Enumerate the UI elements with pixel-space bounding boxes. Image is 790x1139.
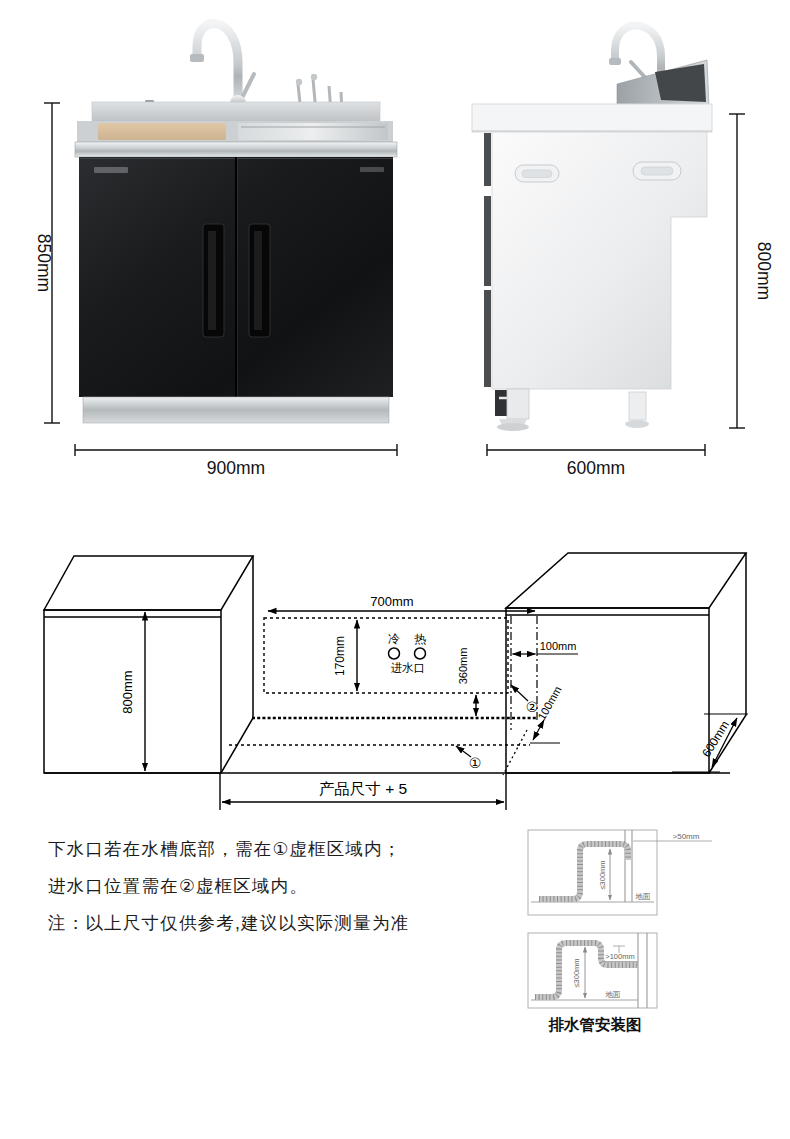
height-label: ≤300mm bbox=[572, 958, 581, 987]
left-door-handle-inner bbox=[208, 231, 216, 330]
left-box-top-face bbox=[44, 556, 253, 610]
ground-label: 地面 bbox=[635, 892, 652, 901]
cold-inlet-circle bbox=[389, 648, 400, 659]
opening-width-label: 700mm bbox=[370, 594, 413, 609]
drain-diagram-wall: >100mm ≤300mm 地面 bbox=[528, 933, 657, 1008]
front-foot bbox=[507, 389, 529, 419]
left-box-right-face bbox=[221, 556, 253, 773]
drain-pipe-guide: ≤300mm 地面 >50mm >100mm ≤300mm 地面 bbox=[525, 828, 720, 1043]
rear-foot bbox=[629, 392, 646, 420]
inlet-label: 进水口 bbox=[391, 662, 426, 674]
counter-apron bbox=[75, 142, 397, 157]
installation-notes: 下水口若在水槽底部，需在①虚框区域内； 进水口位置需在②虚框区域内。 注：以上尺… bbox=[48, 831, 518, 942]
backsplash bbox=[92, 102, 380, 121]
cutting-board bbox=[98, 123, 226, 140]
inlet-height-label: 170mm bbox=[333, 636, 347, 676]
side-view-figure: 800mm 600mm bbox=[455, 0, 775, 480]
countertop bbox=[77, 121, 393, 142]
front-width-label: 900mm bbox=[207, 458, 265, 478]
drain-offset-label: 360mm bbox=[457, 648, 469, 685]
note-line-3: 注：以上尺寸仅供参考,建议以实际测量为准 bbox=[48, 905, 518, 942]
note-line-1: 下水口若在水槽底部，需在①虚框区域内； bbox=[48, 831, 518, 868]
product-dimension-sheet: 850mm 900mm bbox=[0, 0, 790, 1139]
zone2-depth-arrow bbox=[533, 720, 544, 740]
rear-foot-pad bbox=[625, 420, 649, 428]
utensil-handle bbox=[311, 74, 317, 80]
front-view-figure: 850mm 900mm bbox=[0, 0, 450, 480]
hot-inlet-circle bbox=[415, 648, 426, 659]
corrugated-pipe bbox=[539, 844, 628, 899]
faucet-lever bbox=[243, 74, 254, 96]
zone2-depth-label: 100mm bbox=[535, 684, 563, 722]
installation-diagram: 800mm 700mm 170mm 冷 热 进水口 360mm 100mm ② … bbox=[30, 530, 790, 830]
sink-basin bbox=[238, 123, 388, 140]
height-dim-label: 800mm bbox=[120, 670, 135, 713]
side-door-edge-strips bbox=[484, 133, 491, 387]
clearance-label: >50mm bbox=[673, 832, 700, 841]
front-width-dimension bbox=[75, 444, 397, 456]
note-line-2: 进水口位置需在②虚框区域内。 bbox=[48, 868, 518, 905]
right-box-top-face bbox=[506, 553, 746, 608]
zone1-mark: ① bbox=[469, 755, 482, 771]
front-foot-pad bbox=[497, 423, 529, 431]
side-height-dimension bbox=[729, 114, 745, 428]
handle-slot-left bbox=[522, 170, 552, 178]
side-feet bbox=[495, 389, 649, 431]
hot-label: 热 bbox=[414, 632, 426, 646]
utensil-handle bbox=[296, 79, 302, 85]
side-depth-label: 600mm bbox=[567, 458, 625, 478]
clearance-label: >100mm bbox=[605, 952, 634, 961]
side-height-label: 800mm bbox=[754, 242, 774, 300]
bottom-dimension-label: 产品尺寸 + 5 bbox=[319, 780, 407, 797]
kickplate bbox=[83, 397, 389, 423]
right-door-handle-inner bbox=[254, 231, 262, 330]
cabinet-body-front bbox=[79, 157, 393, 397]
inlet-zone-dashed-rect bbox=[264, 618, 508, 693]
side-faucet bbox=[609, 26, 709, 108]
handle-slot-right bbox=[641, 167, 673, 175]
faucet-spout-tip bbox=[190, 54, 204, 62]
height-label: ≤300mm bbox=[598, 860, 607, 889]
left-cabinet-box bbox=[44, 556, 253, 773]
faucet-spout-tip bbox=[609, 58, 621, 65]
drain-diagram-floor: ≤300mm 地面 >50mm bbox=[528, 830, 712, 915]
water-inlet-marks: 冷 热 进水口 bbox=[388, 632, 426, 674]
drain-guide-caption: 排水管安装图 bbox=[548, 1016, 642, 1033]
zone2-width-label: 100mm bbox=[540, 640, 577, 652]
brand-logo-mark bbox=[94, 167, 128, 173]
front-height-label: 850mm bbox=[34, 234, 54, 292]
depth-dim-label: 600mm bbox=[699, 718, 732, 759]
side-countertop bbox=[472, 104, 712, 132]
cold-label: 冷 bbox=[388, 632, 400, 646]
ground-label: 地面 bbox=[605, 990, 622, 999]
side-depth-dimension bbox=[487, 444, 705, 456]
model-mark bbox=[360, 167, 384, 172]
